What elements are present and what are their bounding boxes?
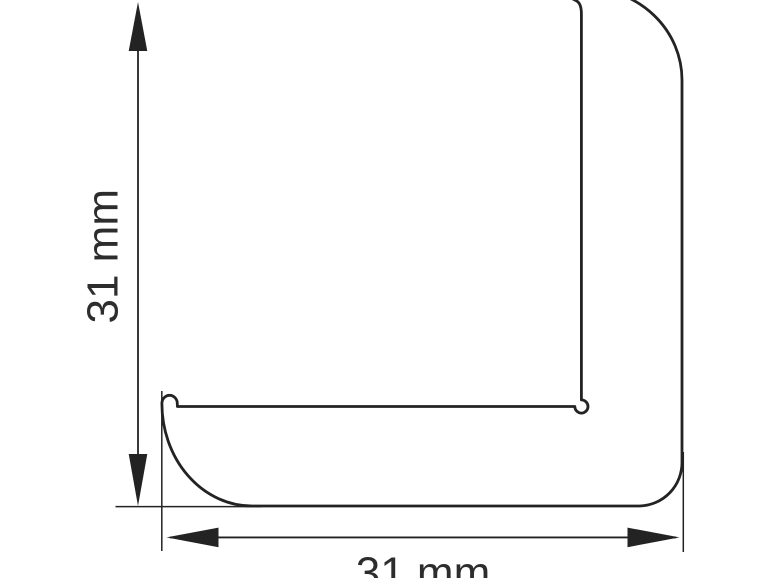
svg-text:31 mm: 31 mm: [79, 189, 128, 323]
svg-text:31 mm: 31 mm: [356, 549, 490, 578]
